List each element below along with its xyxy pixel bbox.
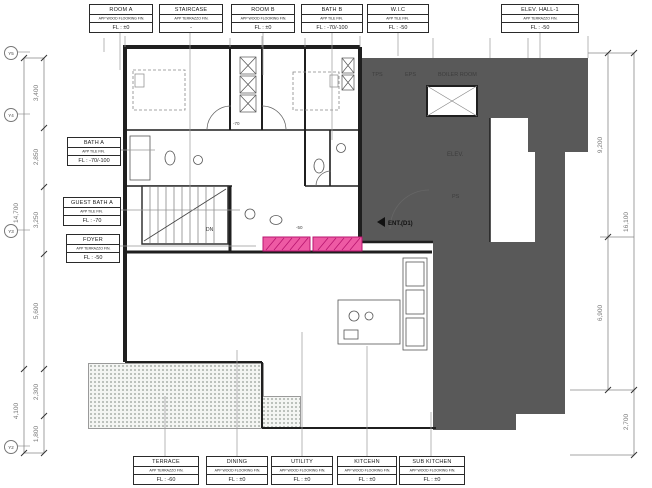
entrance-label: ENT.(D1) xyxy=(388,221,413,227)
eps-label: EPS xyxy=(405,72,416,78)
room-finish: APP WOOD FLOORING FIN. xyxy=(240,17,286,20)
dim-left-5: 2,300 xyxy=(32,370,42,414)
room-finish: APP TILE FIN. xyxy=(81,210,104,213)
room-label-bath-b: BATH B APP TILE FIN. FL : -70/-100 xyxy=(301,4,363,33)
room-label-wic: W.I.C APP TILE FIN. FL : -50 xyxy=(367,4,429,33)
room-name: GUEST BATH A xyxy=(64,198,120,208)
dim-right-1: 9,200 xyxy=(596,123,606,167)
room-label-sub-kitchen: SUB KITCHEN APP WOOD FLOORING FIN. FL : … xyxy=(399,456,465,485)
room-name: BATH B xyxy=(302,5,362,15)
dim-left-2: 2,850 xyxy=(32,135,42,179)
room-level: FL : -70/-100 xyxy=(302,23,362,32)
grid-bubble-label: Y2 xyxy=(8,445,14,450)
room-name: UTILITY xyxy=(272,457,332,467)
dim-left-3: 3,250 xyxy=(32,198,42,242)
level-note-70: -70 xyxy=(233,121,240,126)
stair-dn-label: DN xyxy=(206,227,214,233)
dim-right-2: 6,900 xyxy=(596,291,606,335)
room-label-dining: DINING APP WOOD FLOORING FIN. FL : ±0 xyxy=(206,456,268,485)
room-finish: APP WOOD FLOORING FIN. xyxy=(279,469,325,472)
room-finish: APP TERRAZZO FIN. xyxy=(149,469,183,472)
room-finish: APP WOOD FLOORING FIN. xyxy=(214,469,260,472)
ps-label: PS xyxy=(452,194,460,200)
room-name: TERRACE xyxy=(134,457,198,467)
room-name: SUB KITCHEN xyxy=(400,457,464,467)
room-finish: APP TERRAZZO FIN. xyxy=(523,17,557,20)
grid-bubble-y2: Y2 xyxy=(4,440,18,454)
room-finish: APP WOOD FLOORING FIN. xyxy=(409,469,455,472)
room-label-staircase: STAIRCASE APP TERRAZZO FIN. - xyxy=(159,4,223,33)
room-name: W.I.C xyxy=(368,5,428,15)
room-level: FL : ±0 xyxy=(90,23,152,32)
room-name: FOYER xyxy=(67,235,119,245)
room-level: - xyxy=(160,23,222,32)
grid-bubble-y4: Y4 xyxy=(4,108,18,122)
dim-right-3: 2,700 xyxy=(622,400,632,444)
room-finish: APP WOOD FLOORING FIN. xyxy=(344,469,390,472)
room-name: ROOM A xyxy=(90,5,152,15)
room-label-terrace: TERRACE APP TERRAZZO FIN. FL : -60 xyxy=(133,456,199,485)
room-name: DINING xyxy=(207,457,267,467)
boiler-room-label: BOILER ROOM xyxy=(438,72,477,78)
room-level: FL : -70 xyxy=(64,216,120,225)
pink-highlight xyxy=(263,237,362,251)
room-level: FL : -50 xyxy=(502,23,578,32)
room-label-kitchen: KITCEHN APP WOOD FLOORING FIN. FL : ±0 xyxy=(337,456,397,485)
room-label-elev-hall: ELEV. HALL-1 APP TERRAZZO FIN. FL : -50 xyxy=(501,4,579,33)
grid-bubble-y5: Y5 xyxy=(4,46,18,60)
room-label-foyer: FOYER APP TERRAZZO FIN. FL : -50 xyxy=(66,234,120,263)
dim-left-total-2: 4,100 xyxy=(12,389,22,433)
room-level: FL : ±0 xyxy=(400,475,464,484)
room-finish: APP TILE FIN. xyxy=(321,17,344,20)
kitchen-counters xyxy=(338,258,427,350)
room-label-room-b: ROOM B APP WOOD FLOORING FIN. FL : ±0 xyxy=(231,4,295,33)
bed-outlines xyxy=(133,70,339,110)
room-level: FL : -60 xyxy=(134,475,198,484)
room-name: ROOM B xyxy=(232,5,294,15)
room-finish: APP TERRAZZO FIN. xyxy=(174,17,208,20)
room-finish: APP WOOD FLOORING FIN. xyxy=(98,17,144,20)
room-label-bath-a: BATH A APP TILE FIN. FL : -70/-100 xyxy=(67,137,121,166)
room-name: STAIRCASE xyxy=(160,5,222,15)
room-name: ELEV. HALL-1 xyxy=(502,5,578,15)
dim-left-1: 3,400 xyxy=(32,71,42,115)
tps-label: TPS xyxy=(372,72,383,78)
grid-bubble-label: Y3 xyxy=(8,229,14,234)
room-label-utility: UTILITY APP WOOD FLOORING FIN. FL : ±0 xyxy=(271,456,333,485)
elevator-shaft xyxy=(427,86,477,116)
room-name: KITCEHN xyxy=(338,457,396,467)
level-note-50: -50 xyxy=(296,225,303,230)
grid-bubble-label: Y5 xyxy=(8,51,14,56)
floor-plan-sheet: ENT.(D1) xyxy=(0,0,652,488)
room-level: FL : ±0 xyxy=(272,475,332,484)
grid-bubble-label: Y4 xyxy=(8,113,14,118)
poche-notch xyxy=(516,414,565,430)
grid-bubble-y3: Y3 xyxy=(4,224,18,238)
room-finish: APP TERRAZZO FIN. xyxy=(76,247,110,250)
room-finish: APP TILE FIN. xyxy=(387,17,410,20)
room-label-room-a: ROOM A APP WOOD FLOORING FIN. FL : ±0 xyxy=(89,4,153,33)
room-level: FL : ±0 xyxy=(207,475,267,484)
room-label-guest-bath-a: GUEST BATH A APP TILE FIN. FL : -70 xyxy=(63,197,121,226)
room-name: BATH A xyxy=(68,138,120,148)
room-level: FL : ±0 xyxy=(232,23,294,32)
room-level: FL : ±0 xyxy=(338,475,396,484)
room-level: FL : -50 xyxy=(67,253,119,262)
dim-left-6: 1,800 xyxy=(32,412,42,456)
dim-left-4: 5,600 xyxy=(32,289,42,333)
dim-right-total-1: 16,100 xyxy=(622,200,632,244)
room-finish: APP TILE FIN. xyxy=(83,150,106,153)
closet-shelving xyxy=(240,57,354,112)
elev-label: ELEV. xyxy=(447,152,464,158)
room-level: FL : -50 xyxy=(368,23,428,32)
staircase xyxy=(142,186,228,244)
room-level: FL : -70/-100 xyxy=(68,156,120,165)
